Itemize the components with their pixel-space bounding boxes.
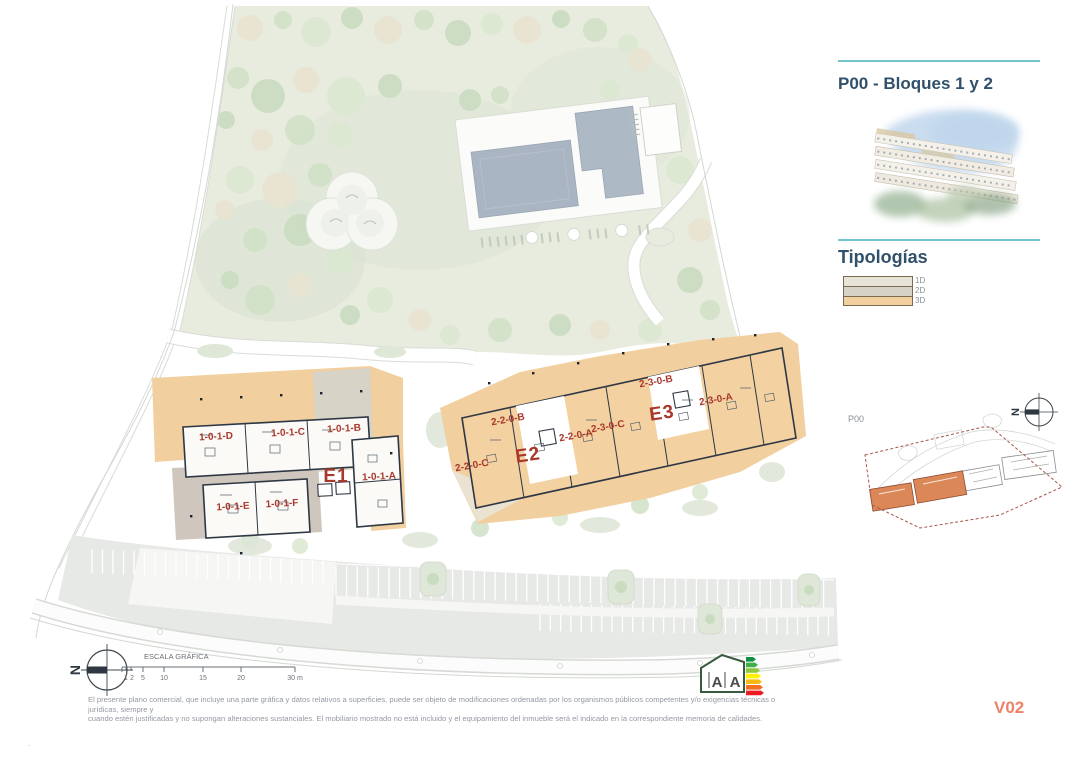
keymap-north-letter: N [1010,408,1022,416]
scale-label: 15 [199,675,207,682]
version-label: V02 [994,698,1024,718]
legend-swatch [843,286,913,296]
legend-swatch [843,296,913,306]
scale-labels: 1 2 5 10 15 20 30 m [124,675,303,682]
scale-label: 30 m [287,675,303,682]
legend-label: 2D [913,286,925,296]
energy-rating-icon: A A [698,652,764,700]
disclaimer-line1: El presente plano comercial, que incluye… [88,695,790,714]
building-render-image [860,100,1030,228]
energy-scale-arrows [746,657,764,695]
key-map: P00 N [843,382,1075,544]
legend-label: 1D [913,276,925,286]
title-block: P00 - Bloques 1 y 2 Tipologías 1D2D3D [838,60,1042,306]
energy-letter-left: A [712,674,723,691]
rule-bottom [838,239,1040,241]
legend-swatch [843,276,913,286]
scale-label: 2 [130,675,134,682]
scale-ticks [122,667,295,672]
building-e1 [152,366,406,554]
scale-label: 10 [160,675,168,682]
disclaimer-text: El presente plano comercial, que incluye… [88,695,790,724]
legend-label: 3D [913,296,925,306]
typology-title: Tipologías [838,247,1042,268]
pool-main [471,140,578,218]
energy-letter-right: A [730,674,741,691]
scale-bar: ESCALA GRÁFICA 1 2 5 10 15 20 30 m [80,648,380,688]
scale-title: ESCALA GRÁFICA [144,652,209,661]
sheet-title: P00 - Bloques 1 y 2 [838,74,1042,94]
scale-label: 5 [141,675,145,682]
building-e2-e3 [440,332,806,524]
typology-legend: 1D2D3D [843,276,1042,306]
scale-label: 20 [237,675,245,682]
keymap-plane-label: P00 [848,414,864,424]
keymap-north-arrow: N [1010,393,1058,431]
scale-label: 1 [124,675,128,682]
keymap-highlighted-blocks [870,471,967,511]
corner-mark: . [28,738,31,748]
keymap-other-blocks [960,450,1057,491]
legend-row: 3D [843,296,1042,306]
legend-row: 2D [843,286,1042,296]
rule-top [838,60,1040,62]
legend-row: 1D [843,276,1042,286]
disclaimer-line2: cuando estén justificadas y no supongan … [88,714,790,724]
